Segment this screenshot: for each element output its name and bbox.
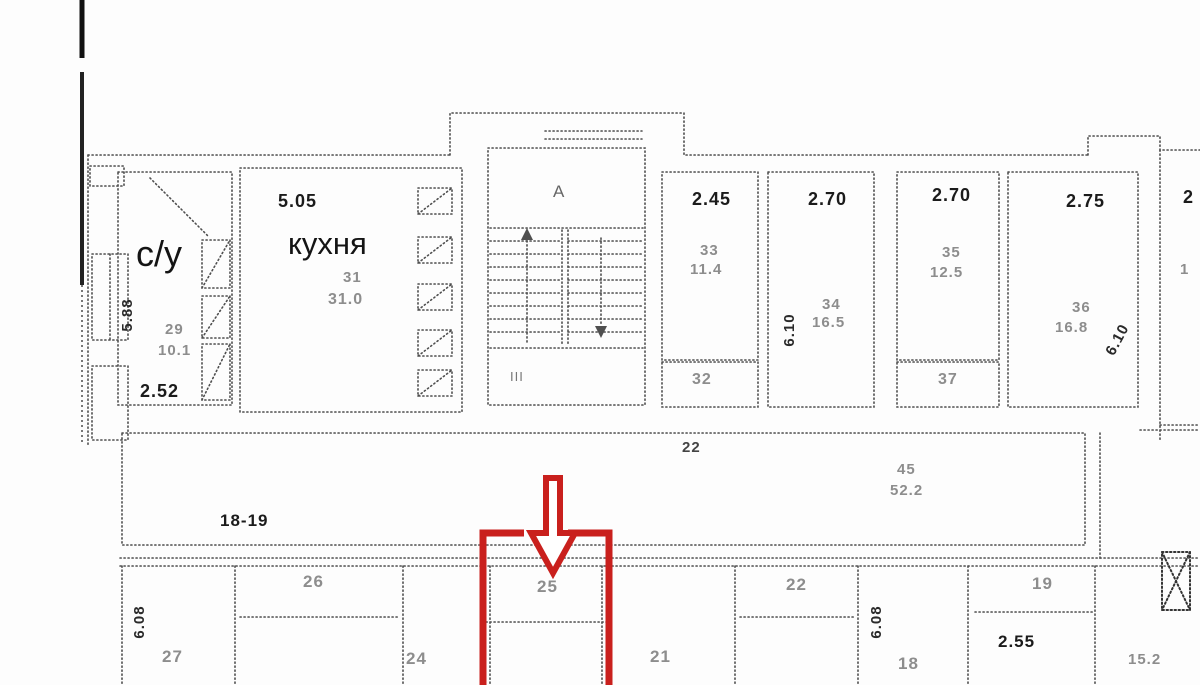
- highlight-annotation: [0, 0, 1200, 685]
- highlight-arrow-icon: [531, 478, 575, 573]
- floor-plan: с/у 5.88 29 10.1 2.52 5.05 кухня 31 31.0…: [0, 0, 1200, 685]
